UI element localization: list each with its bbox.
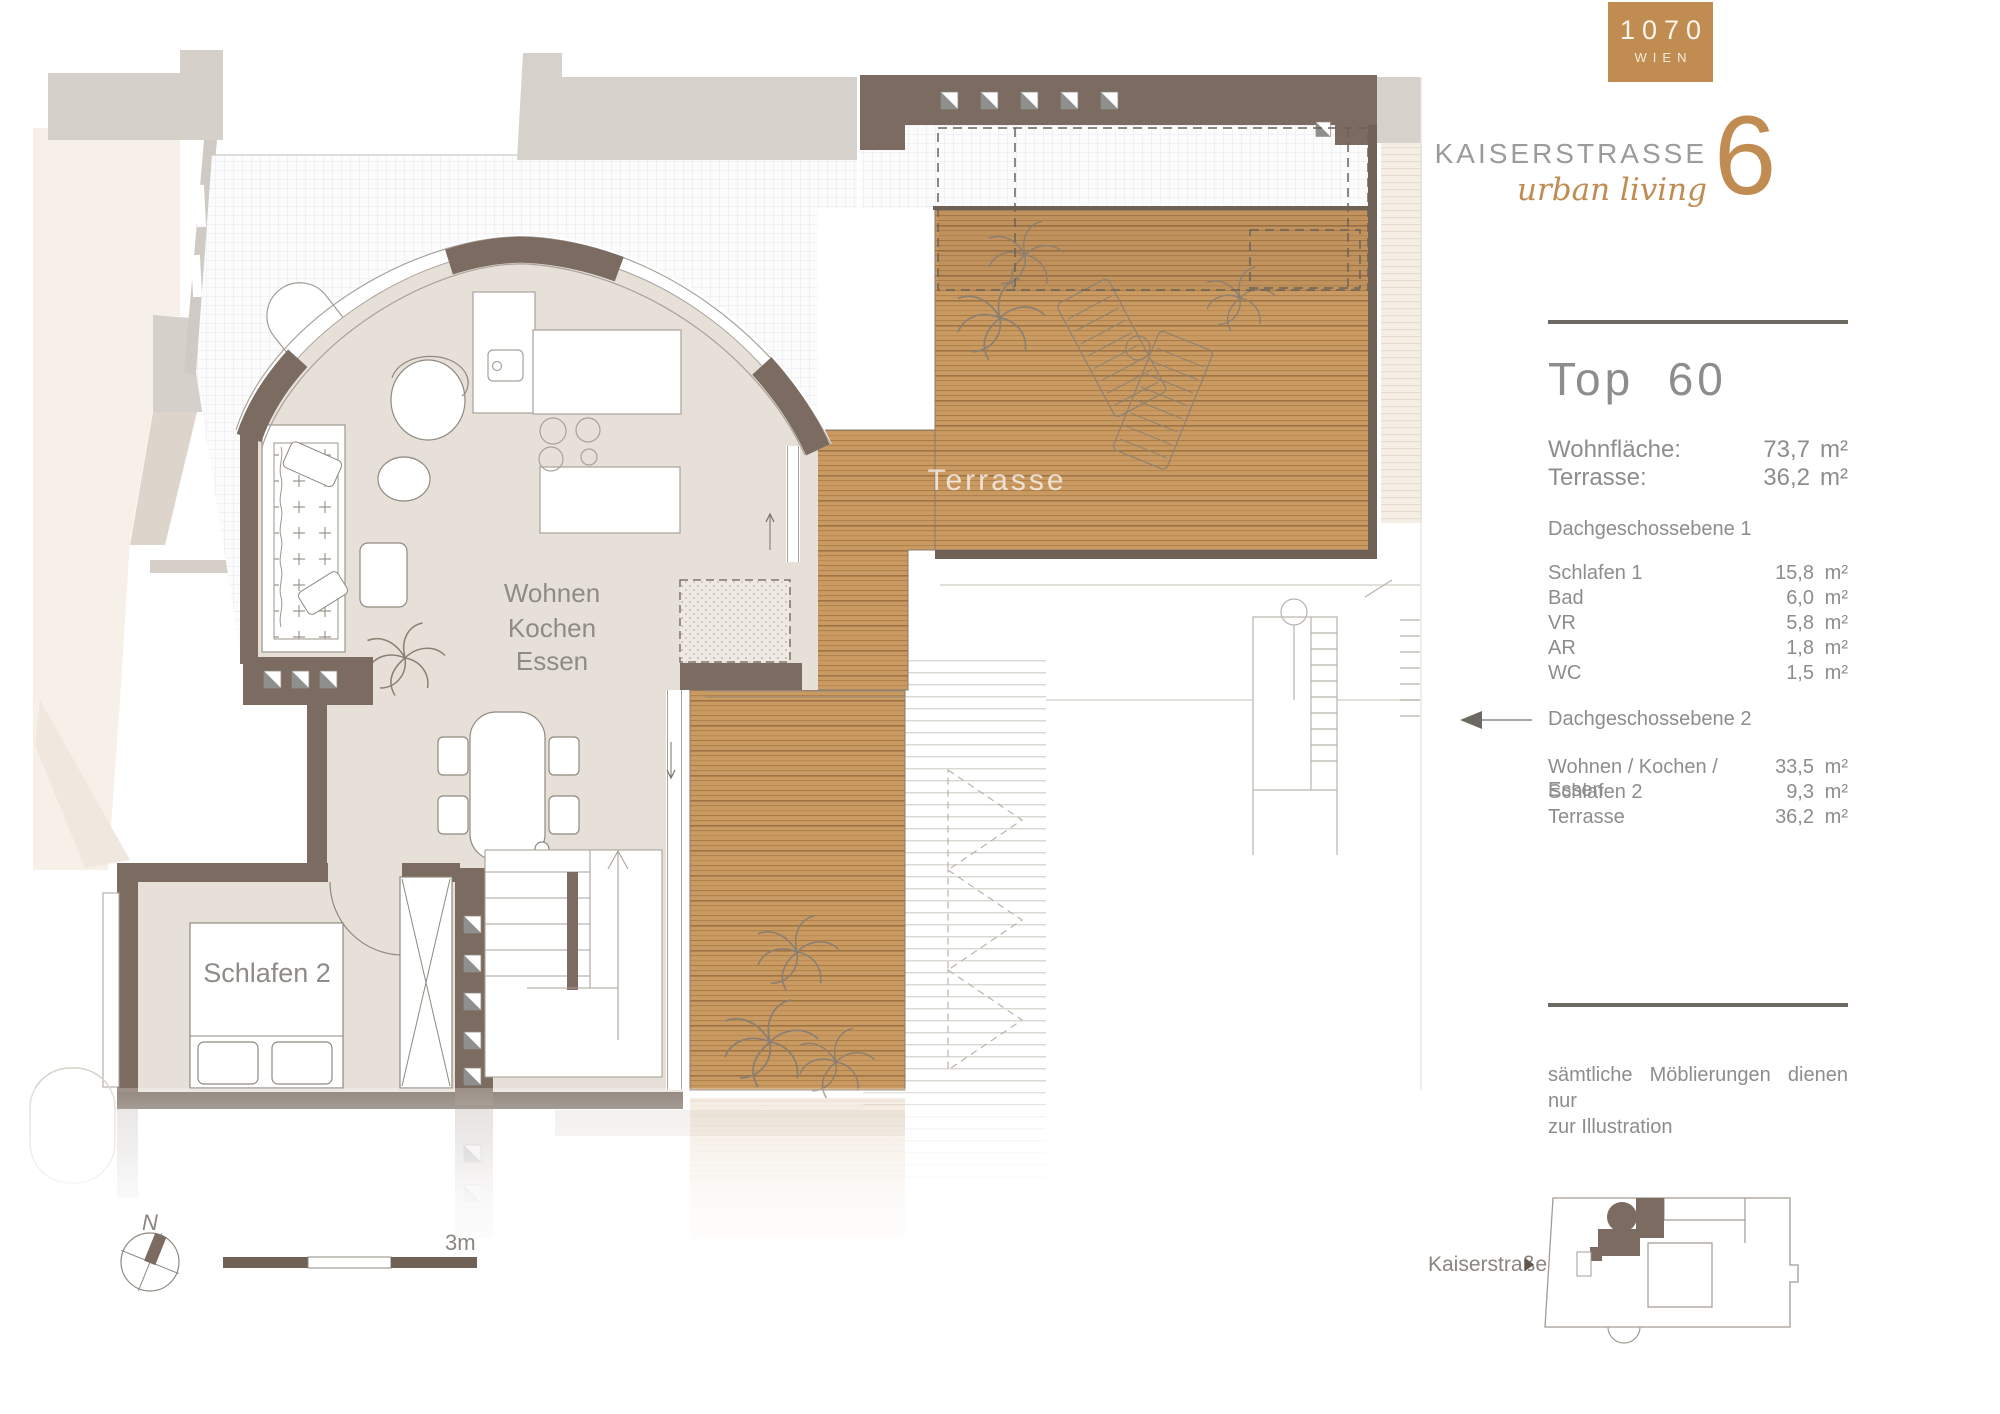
table-row: Terrasse 36,2 m² (1548, 806, 1848, 831)
summary-row: Terrasse: 36,2 m² (1548, 464, 1848, 492)
armchair (391, 360, 465, 440)
bedroom2-label: Schlafen 2 (203, 958, 331, 988)
sink-icon (488, 350, 523, 381)
living-label-2: Kochen (508, 613, 596, 643)
divider-bottom (1548, 1003, 1848, 1007)
living-label-3: Essen (516, 646, 588, 676)
room-area: 1,8 (1768, 637, 1814, 662)
floorplan-canvas: Wohnen Kochen Essen Schlafen 2 Terrasse … (0, 0, 2000, 1414)
table-row: Bad 6,0 m² (1548, 587, 1848, 612)
room-area: 1,5 (1768, 662, 1814, 687)
room-unit: m² (1814, 756, 1848, 781)
brand-number: 6 (1714, 100, 1776, 212)
room-area: 33,5 (1768, 756, 1814, 781)
table-row: AR 1,8 m² (1548, 637, 1848, 662)
living-label-1: Wohnen (504, 578, 600, 608)
brand-name: KAISERSTRASSE (1395, 138, 1707, 170)
table-row: Schlafen 1 15,8 m² (1548, 562, 1848, 587)
side-table (360, 543, 407, 607)
room-unit: m² (1814, 587, 1848, 612)
divider-top (1548, 320, 1848, 324)
room-name: AR (1548, 637, 1768, 662)
scale-label: 3m (445, 1230, 476, 1255)
room-area: 5,8 (1768, 612, 1814, 637)
table-row: Schlafen 2 9,3 m² (1548, 781, 1848, 806)
room-area: 36,2 (1768, 806, 1814, 831)
room-name: Schlafen 2 (1548, 781, 1768, 806)
room-unit: m² (1814, 662, 1848, 687)
room-name: Wohnen / Kochen / Essen (1548, 756, 1768, 781)
terrace-label: Terrasse (927, 464, 1066, 497)
level1-heading: Dachgeschossebene 1 (1548, 518, 1848, 541)
district-city: WIEN (1608, 46, 1713, 65)
level2-heading: Dachgeschossebene 2 (1548, 708, 1848, 731)
table-row: WC 1,5 m² (1548, 662, 1848, 687)
note-line-2: zur Illustration (1548, 1114, 1848, 1140)
summary-value: 36,2 (1754, 464, 1810, 492)
room-area: 6,0 (1768, 587, 1814, 612)
unit-title: Top 60 (1548, 352, 1848, 406)
plan-reflection (0, 1068, 1500, 1288)
district-logo: 1070 WIEN (1608, 2, 1713, 82)
room-unit: m² (1814, 781, 1848, 806)
summary-unit: m² (1810, 464, 1848, 492)
table-row: VR 5,8 m² (1548, 612, 1848, 637)
summary-value: 73,7 (1754, 436, 1810, 464)
summary-unit: m² (1810, 436, 1848, 464)
ottoman (378, 457, 430, 501)
room-area: 9,3 (1768, 781, 1814, 806)
room-unit: m² (1814, 637, 1848, 662)
note-line-1: sämtliche Möblierungen dienen nur (1548, 1062, 1848, 1114)
summary-row: Wohnfläche: 73,7 m² (1548, 436, 1848, 464)
room-name: Bad (1548, 587, 1768, 612)
district-number: 1070 (1608, 2, 1713, 46)
compass-n-label: N (142, 1210, 158, 1235)
room-area: 15,8 (1768, 562, 1814, 587)
summary-label: Terrasse: (1548, 464, 1754, 492)
room-name: WC (1548, 662, 1768, 687)
room-name: Schlafen 1 (1548, 562, 1768, 587)
room-unit: m² (1814, 612, 1848, 637)
room-unit: m² (1814, 562, 1848, 587)
furniture-note: sämtliche Möblierungen dienen nur zur Il… (1548, 1062, 1848, 1140)
room-name: Terrasse (1548, 806, 1768, 831)
table-row: Wohnen / Kochen / Essen 33,5 m² (1548, 756, 1848, 781)
interior-stair (485, 850, 662, 1077)
summary-label: Wohnfläche: (1548, 436, 1754, 464)
dining-table (470, 712, 545, 860)
room-name: VR (1548, 612, 1768, 637)
brand-tagline: urban living (1395, 172, 1707, 208)
room-unit: m² (1814, 806, 1848, 831)
